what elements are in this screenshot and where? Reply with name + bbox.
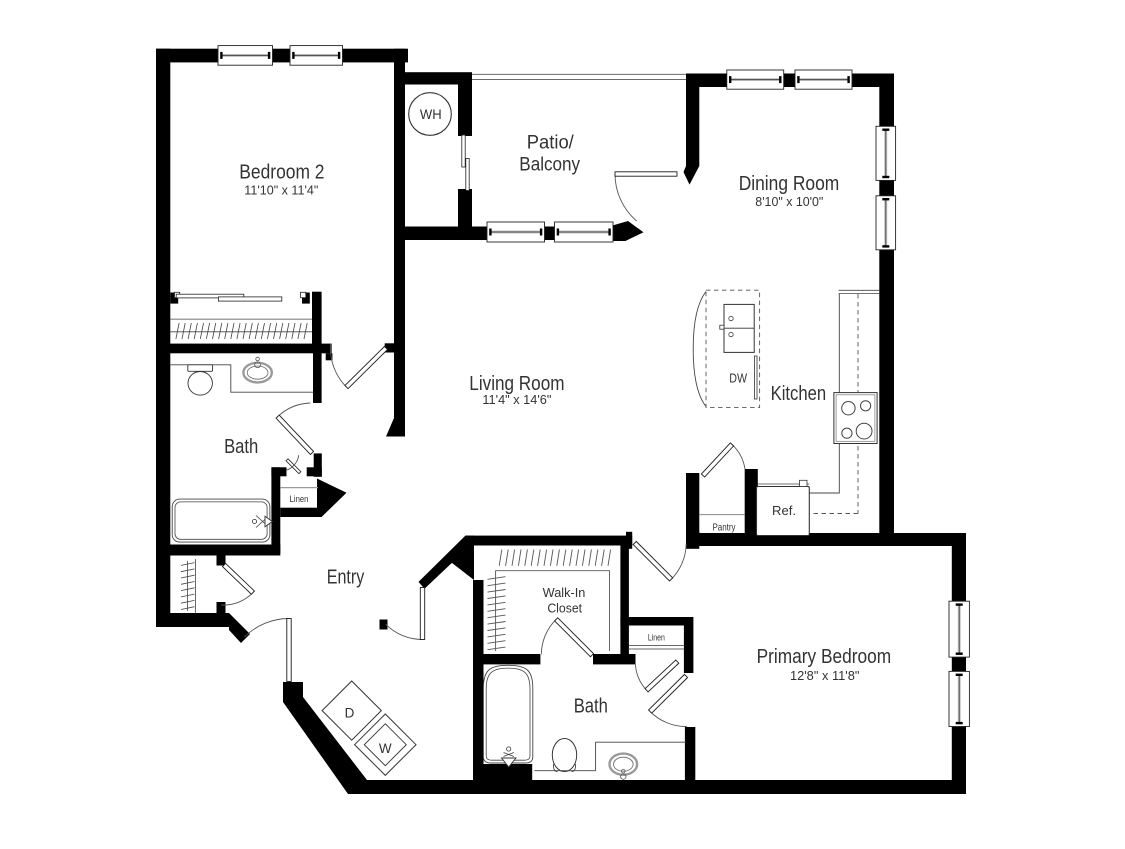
svg-text:Bedroom 2: Bedroom 2 [239,162,324,184]
svg-text:8'10" x 10'0": 8'10" x 10'0" [755,194,823,209]
svg-text:Ref.: Ref. [772,504,796,518]
svg-text:Closet: Closet [547,601,582,616]
svg-text:Primary Bedroom: Primary Bedroom [757,646,892,668]
svg-text:11'4" x 14'6": 11'4" x 14'6" [482,392,551,407]
svg-text:Balcony: Balcony [519,155,580,176]
svg-text:Dining Room: Dining Room [739,173,840,195]
svg-text:11'10" x 11'4": 11'10" x 11'4" [244,183,318,198]
svg-text:D: D [345,706,355,721]
svg-text:W: W [379,741,392,756]
svg-text:Linen: Linen [290,494,309,504]
svg-text:WH: WH [420,106,442,122]
svg-text:Walk-In: Walk-In [543,585,586,600]
svg-text:Bath: Bath [224,436,258,458]
svg-text:Kitchen: Kitchen [771,383,827,405]
svg-text:Pantry: Pantry [712,523,735,534]
svg-text:12'8" x 11'8": 12'8" x 11'8" [790,668,860,683]
svg-text:Linen: Linen [648,633,665,643]
svg-text:Entry: Entry [327,567,365,589]
svg-text:DW: DW [729,372,747,386]
svg-text:Patio/: Patio/ [527,132,575,153]
svg-text:Bath: Bath [574,696,608,718]
